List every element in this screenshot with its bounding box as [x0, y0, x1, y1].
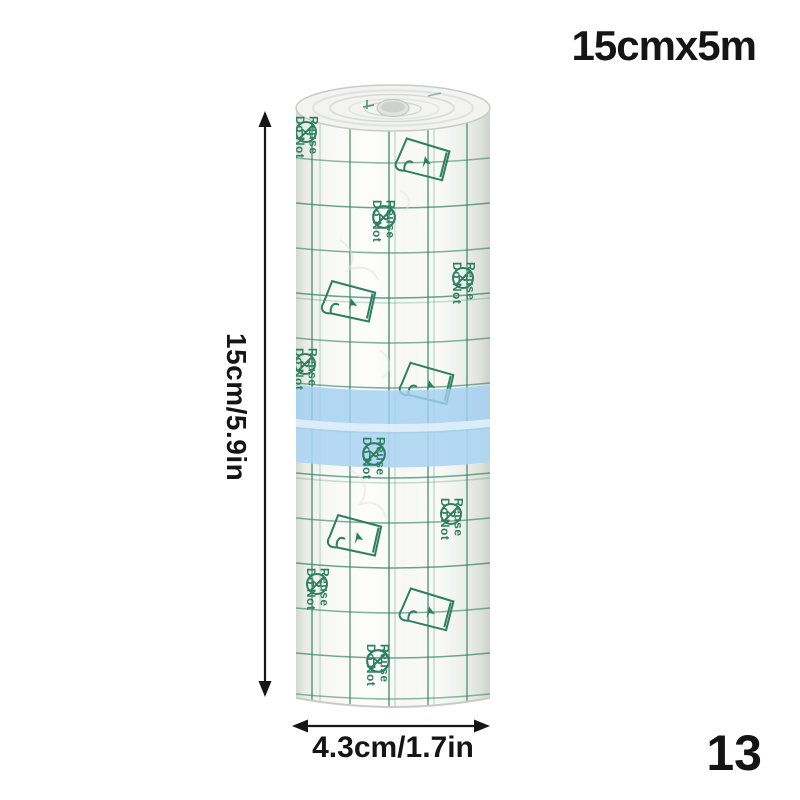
index-label: 13: [706, 724, 762, 782]
product-photo: Do NotReuse 2 Do NotReuse 2 Do NotReuse: [0, 0, 800, 800]
do-not-reuse-mark: Do NotReuse 2: [370, 200, 396, 242]
do-not-reuse-mark: Do NotReuse 2: [450, 262, 476, 304]
do-not-reuse-mark: Do NotReuse 2: [360, 437, 386, 479]
no-reuse-icon: 2: [296, 120, 318, 144]
no-reuse-icon: 2: [361, 441, 387, 467]
no-reuse-icon: 2: [371, 204, 397, 230]
height-label: 15cm/5.9in: [220, 333, 252, 481]
size-label: 15cmx5m: [572, 22, 756, 70]
do-not-reuse-mark: Do NotReuse 2: [438, 498, 464, 540]
do-not-reuse-mark: Do NotReuse 2: [296, 348, 318, 390]
no-reuse-icon: 2: [365, 648, 391, 674]
roll-print-overlays: Do NotReuse 2 Do NotReuse 2 Do NotReuse: [296, 85, 490, 717]
do-not-reuse-mark: Do NotReuse 2: [304, 568, 330, 610]
do-not-reuse-mark: Do NotReuse 2: [296, 116, 319, 158]
do-not-reuse-mark: Do NotReuse 2: [364, 644, 390, 686]
no-reuse-icon: 2: [305, 572, 329, 596]
no-reuse-icon: 2: [439, 502, 463, 526]
no-reuse-icon: 2: [451, 266, 475, 290]
no-reuse-icon: 2: [296, 352, 317, 376]
width-label: 4.3cm/1.7in: [296, 731, 490, 765]
height-arrow: [259, 111, 272, 697]
